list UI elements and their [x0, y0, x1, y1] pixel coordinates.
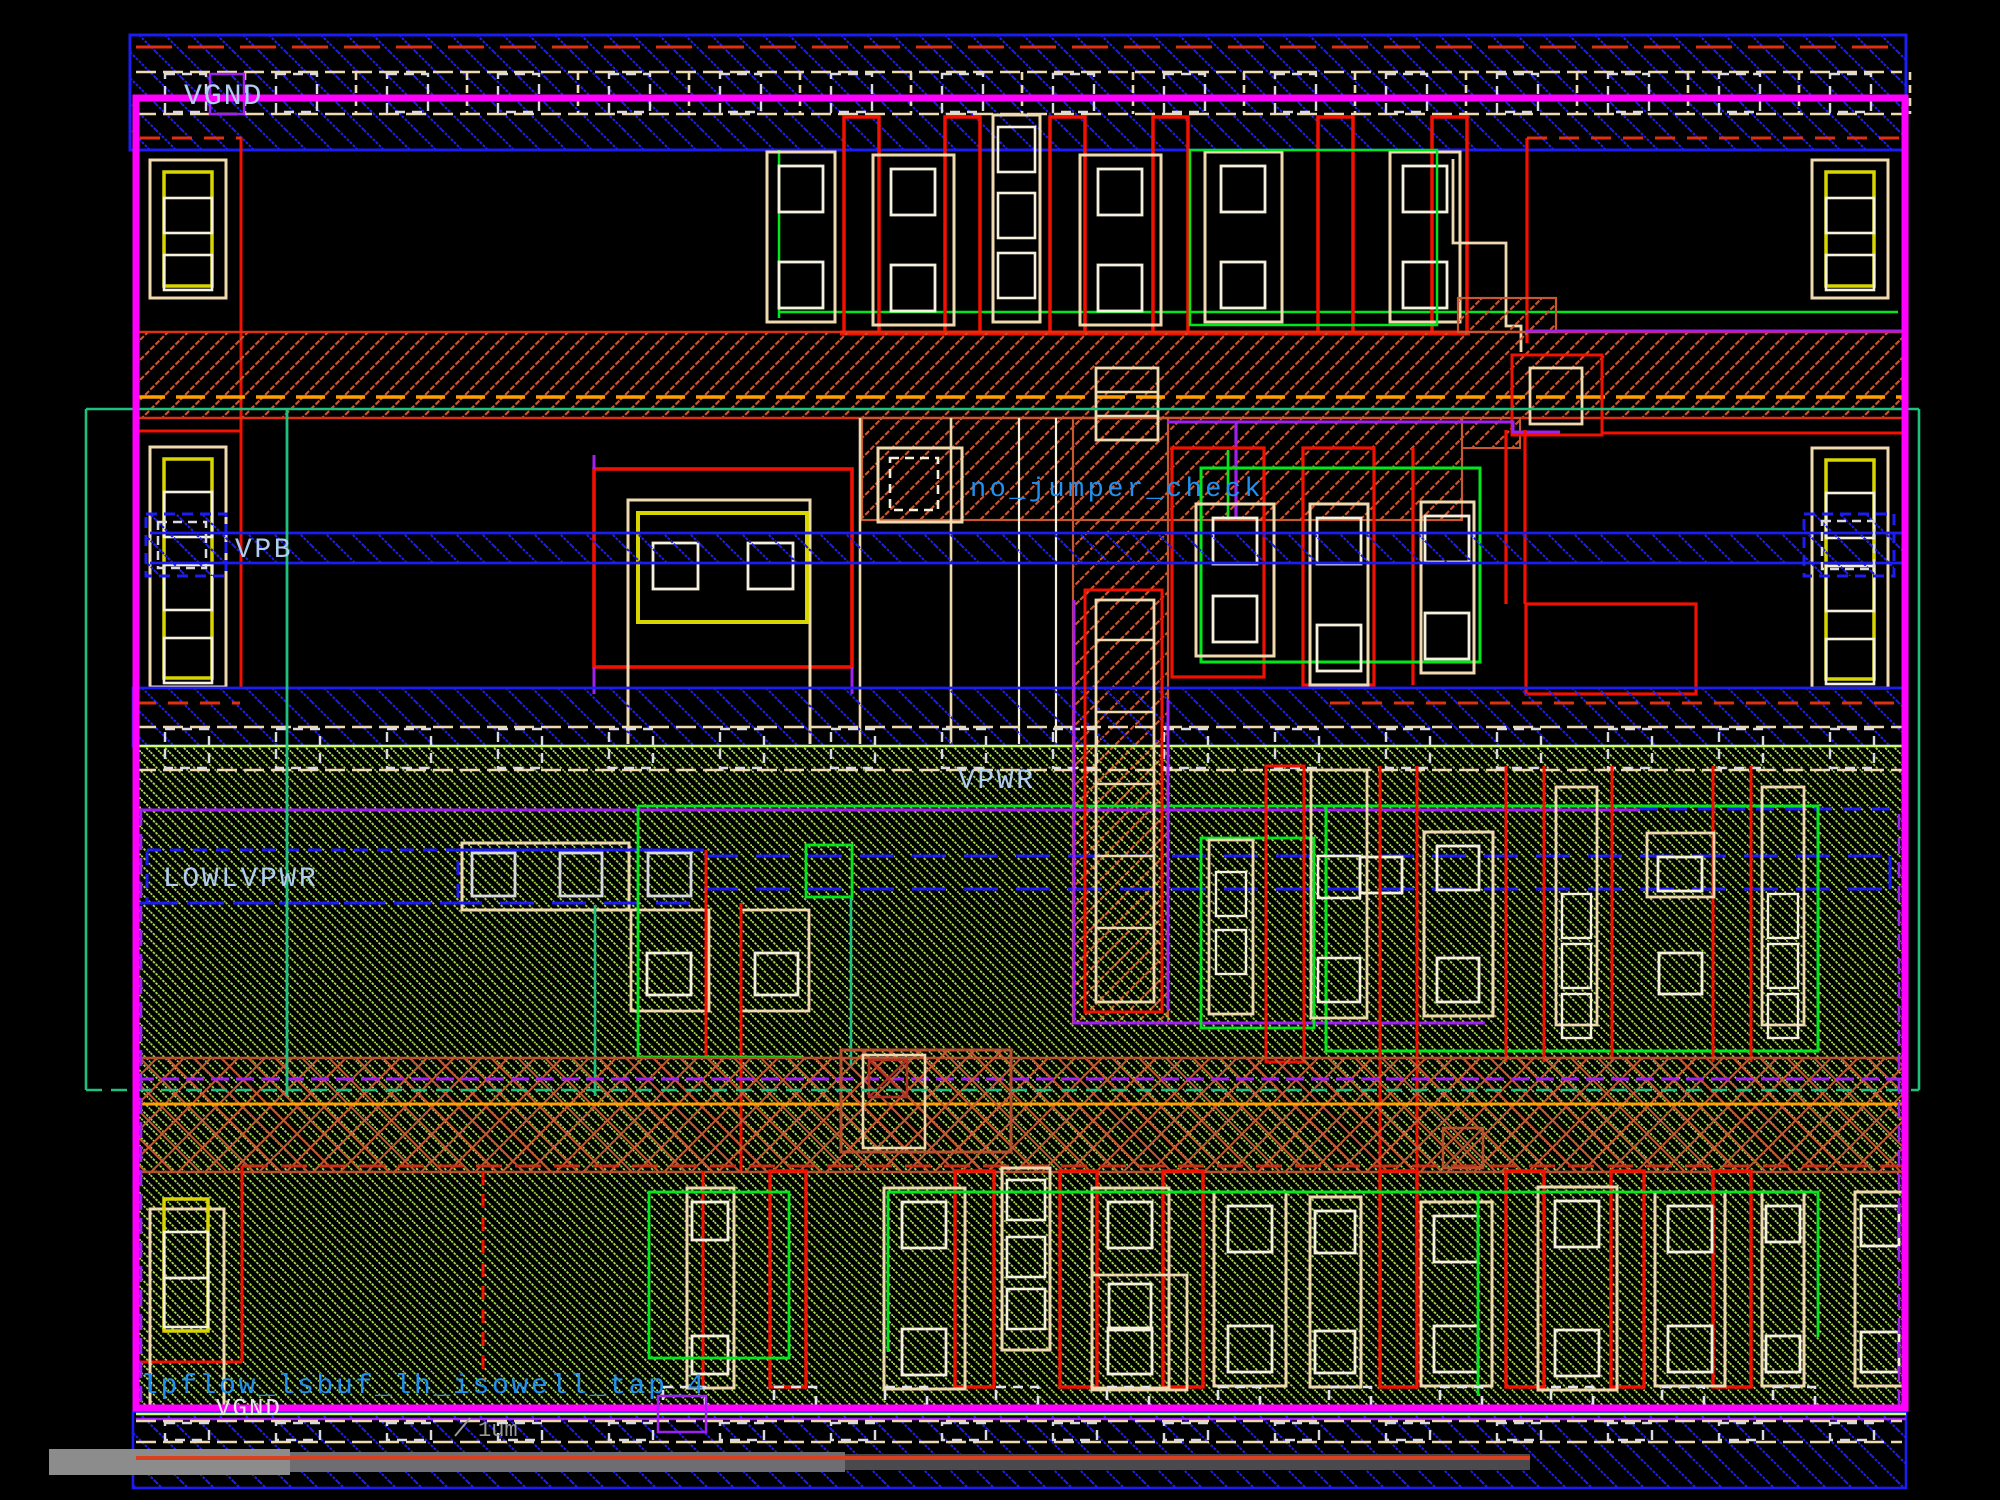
svg-text:no_jumper_check: no_jumper_check — [970, 475, 1264, 505]
svg-text:VGND: VGND — [216, 1396, 282, 1423]
svg-text:VGND: VGND — [184, 80, 263, 114]
svg-text:VPB: VPB — [235, 535, 293, 566]
svg-text:1um: 1um — [478, 1418, 518, 1443]
svg-text:VPWR: VPWR — [958, 766, 1036, 797]
svg-text:LOWLVPWR: LOWLVPWR — [163, 864, 318, 895]
